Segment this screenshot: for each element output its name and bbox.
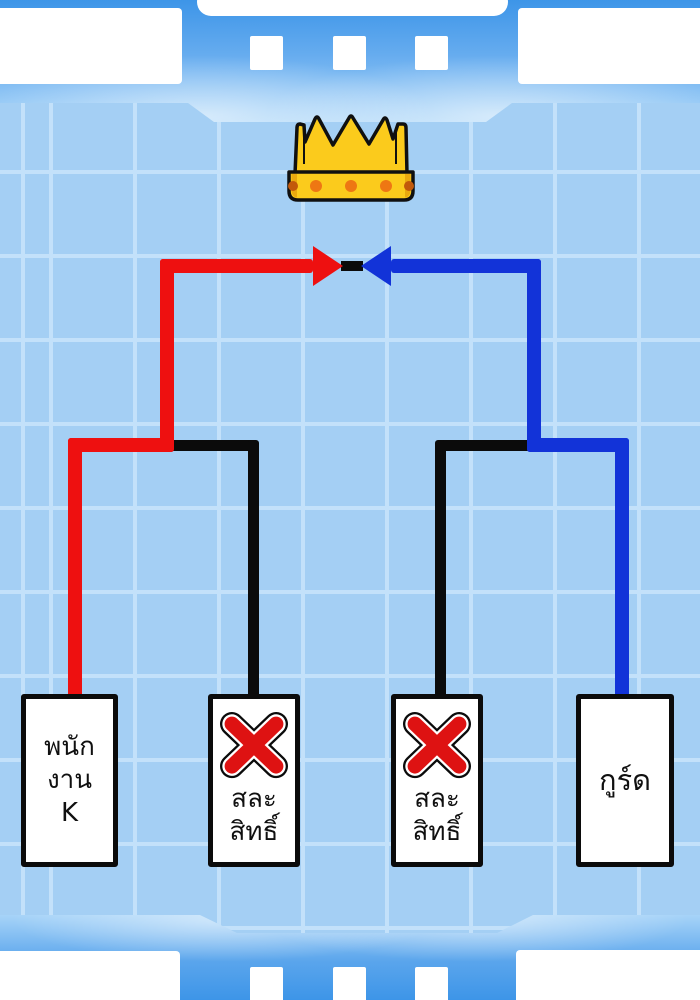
frame-corner-bottom-right (516, 950, 700, 1000)
frame-slot-bottom-2 (333, 967, 366, 1000)
winner-path-right-horizontal-lower (527, 438, 629, 452)
eliminated-path-right-vertical (435, 440, 446, 700)
participant-label-line: งาน (47, 764, 92, 797)
frame-slot-bottom-3 (415, 967, 448, 1000)
participant-box-1: พนัก งาน K (21, 694, 118, 867)
eliminated-path-left-horizontal (168, 440, 258, 451)
winner-path-right-vertical-lower (615, 438, 629, 700)
participant-label-line: สิทธิ์ (230, 816, 279, 849)
winner-path-left-vertical-lower (68, 438, 82, 700)
frame-top-notch (197, 0, 508, 16)
final-junction-bar (341, 261, 363, 271)
frame-slot-top-1 (250, 36, 283, 70)
participant-label-line: กูร์ด (599, 764, 651, 797)
eliminated-path-right-horizontal (438, 440, 530, 451)
crown-icon (286, 114, 416, 204)
blue-arrowhead-icon (361, 246, 391, 286)
eliminated-path-left-vertical (248, 440, 259, 700)
participant-label-line: สิทธิ์ (413, 816, 462, 849)
participant-label-line: สละ (231, 783, 277, 816)
red-arrowhead-icon (313, 246, 343, 286)
frame-slot-top-2 (333, 36, 366, 70)
winner-path-left-horizontal-lower (68, 438, 174, 452)
participant-label-line: สละ (414, 783, 460, 816)
winner-path-left-horizontal-upper (160, 259, 313, 273)
x-mark-icon (217, 712, 291, 780)
frame-corner-bottom-left (0, 951, 180, 1000)
frame-slot-bottom-1 (250, 967, 283, 1000)
participant-label-line: พนัก (44, 731, 95, 764)
winner-path-left-vertical-upper (160, 259, 174, 452)
x-mark-icon (400, 712, 474, 780)
frame-corner-top-left (0, 8, 182, 84)
frame-slot-top-3 (415, 36, 448, 70)
participant-box-4: กูร์ด (576, 694, 674, 867)
frame-corner-top-right (518, 8, 700, 84)
winner-path-right-vertical-upper (527, 259, 541, 452)
participant-label-line: K (61, 797, 78, 830)
participant-box-2: สละ สิทธิ์ (208, 694, 300, 867)
participant-box-3: สละ สิทธิ์ (391, 694, 483, 867)
winner-path-right-horizontal-upper (391, 259, 541, 273)
bracket-scene: พนัก งาน K สละ สิทธิ์ สละ สิทธิ์ กูร์ด (0, 0, 700, 1000)
